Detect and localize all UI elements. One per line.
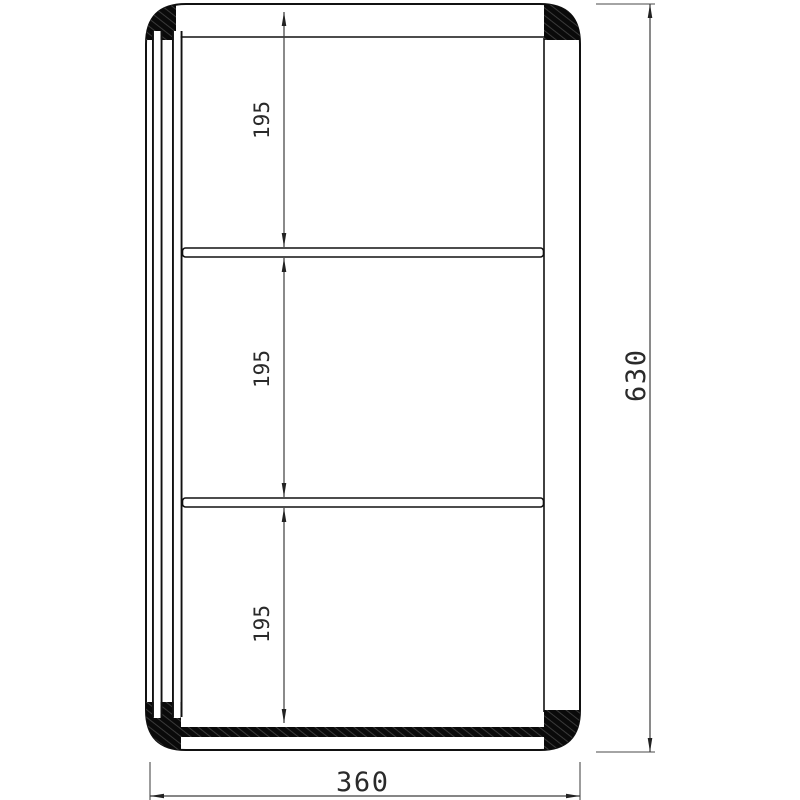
dimension-label-section-top: 195 [250, 101, 274, 139]
drawing-canvas: 195 195 195 630 [0, 0, 800, 800]
track-slots [154, 31, 181, 718]
dimension-section-middle: 195 [250, 258, 286, 497]
dimension-label-overall-width: 360 [336, 767, 388, 798]
frame-outline [146, 4, 580, 750]
corner-block-bottom-right [540, 710, 580, 750]
technical-drawing: 195 195 195 630 [0, 0, 800, 800]
dimension-label-section-middle: 195 [250, 350, 274, 388]
dimension-label-section-bottom: 195 [250, 605, 274, 643]
sliding-door-tracks [152, 31, 183, 717]
dimension-overall-width: 360 [150, 762, 580, 800]
dimension-section-top: 195 [250, 12, 286, 247]
dimension-label-overall-height: 630 [621, 350, 652, 402]
corner-block-top-right [540, 4, 580, 40]
dimension-overall-height: 630 [596, 4, 655, 752]
bottom-rail [176, 727, 544, 737]
shelf-upper [183, 248, 544, 257]
dimension-section-bottom: 195 [250, 508, 286, 723]
shelf-lower [183, 498, 544, 507]
